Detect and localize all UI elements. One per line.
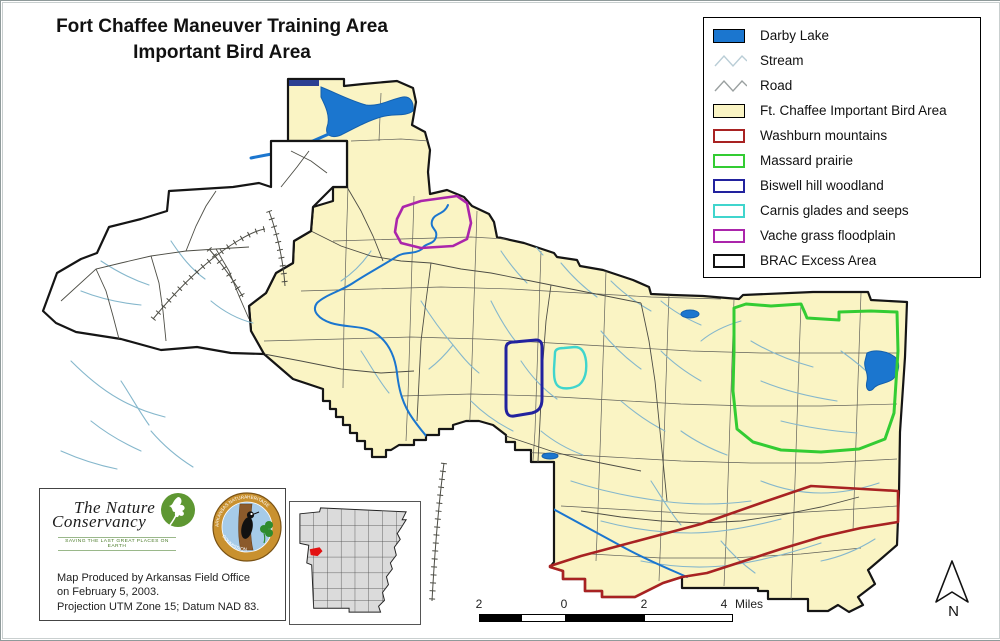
- scale-bar-graphic: [479, 614, 733, 622]
- arkansas-state-map: [290, 502, 418, 622]
- railroad-south: [432, 463, 444, 601]
- iba-swatch: [713, 103, 747, 119]
- biswell-swatch: [713, 178, 747, 194]
- scale-unit: Miles: [735, 597, 763, 611]
- arkansas-heritage-seal-icon: ARKANSAS NATURAL HERITAGE COMMISSION: [212, 492, 282, 562]
- legend-item: Biswell hill woodland: [704, 173, 980, 198]
- legend-item: Ft. Chaffee Important Bird Area: [704, 98, 980, 123]
- washburn-swatch: [713, 128, 747, 144]
- legend-item: Vache grass floodplain: [704, 223, 980, 248]
- scale-label-3: 4: [721, 597, 728, 611]
- arkansas-outline: [300, 508, 406, 612]
- legend-box: Darby Lake Stream Road Ft. Chaffee Impor…: [703, 17, 981, 278]
- title-line-1: Fort Chaffee Maneuver Training Area: [29, 14, 415, 40]
- carnis-swatch: [713, 203, 747, 219]
- credits-line-1: Map Produced by Arkansas Field Office: [57, 571, 259, 585]
- brac-swatch: [713, 253, 747, 269]
- legend-list: Darby Lake Stream Road Ft. Chaffee Impor…: [704, 23, 980, 273]
- legend-item: Road: [704, 73, 980, 98]
- credits-line-2: on February 5, 2003.: [57, 585, 259, 599]
- legend-item: Washburn mountains: [704, 123, 980, 148]
- oak-leaf-icon: [158, 491, 198, 531]
- road-line-icon: [713, 78, 747, 94]
- title-line-2: Important Bird Area: [29, 40, 415, 66]
- scale-bar: 2 0 2 4 Miles: [471, 597, 771, 627]
- map-credits: Map Produced by Arkansas Field Office on…: [57, 571, 259, 614]
- credits-line-3: Projection UTM Zone 15; Datum NAD 83.: [57, 600, 259, 614]
- legend-item: Stream: [704, 48, 980, 73]
- massard-swatch: [713, 153, 747, 169]
- scale-label-1: 0: [561, 597, 568, 611]
- legend-item: Carnis glades and seeps: [704, 198, 980, 223]
- legend-item: Darby Lake: [704, 23, 980, 48]
- scale-label-2: 2: [641, 597, 648, 611]
- page-title: Fort Chaffee Maneuver Training Area Impo…: [29, 14, 415, 65]
- stream-line-icon: [713, 53, 747, 69]
- arkansas-inset-box: [289, 501, 421, 625]
- small-pond-central: [542, 453, 558, 459]
- lake-swatch: [713, 28, 747, 44]
- scale-label-0: 2: [476, 597, 483, 611]
- north-arrow: N: [926, 557, 981, 623]
- river-top-crossing: [289, 80, 319, 86]
- streams-outside-west: [61, 361, 193, 469]
- north-label: N: [926, 603, 981, 620]
- small-pond-north: [681, 310, 699, 318]
- legend-item: BRAC Excess Area: [704, 248, 980, 273]
- north-arrow-icon: [926, 557, 981, 605]
- map-document: Fort Chaffee Maneuver Training Area Impo…: [0, 0, 1000, 641]
- vache-swatch: [713, 228, 747, 244]
- legend-item: Massard prairie: [704, 148, 980, 173]
- tnc-tagline: SAVING THE LAST GREAT PLACES ON EARTH: [58, 537, 176, 551]
- credits-box: The Nature Conservancy SAVING THE LAST G…: [39, 488, 286, 621]
